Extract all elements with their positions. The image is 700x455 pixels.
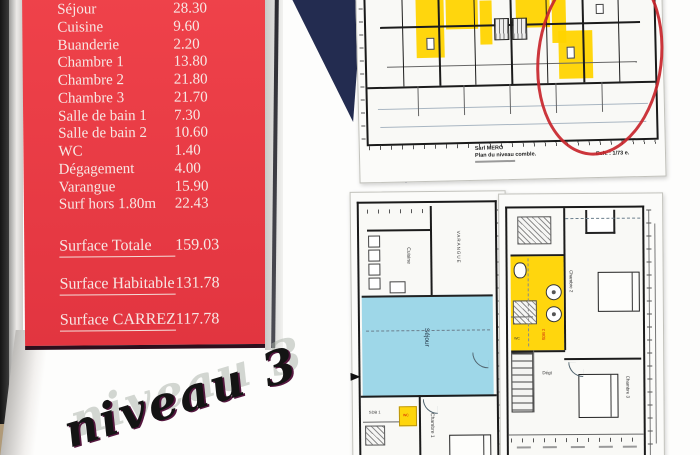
room-label: Chambre 1 [58, 54, 174, 73]
room-label-varangue: VARANGUE [456, 231, 461, 264]
surface-row: Chambre 321.70 [23, 89, 270, 109]
surface-row: Cuisine9.60 [22, 18, 269, 38]
dimension-ticks [358, 0, 366, 144]
room-label-cuisine: Cuisine [405, 247, 411, 264]
room-label-chambre1: Chambre 1 [429, 413, 435, 438]
sink-icon [546, 284, 562, 300]
appliance-icon [368, 250, 380, 262]
scanned-brochure-page: Séjour28.30 Cuisine9.60 Buanderie2.20 Ch… [0, 0, 700, 455]
room-area: 13.80 [174, 54, 208, 72]
surface-row: Buanderie2.20 [22, 35, 269, 55]
stairs-icon [512, 18, 527, 40]
dimension-ticks [511, 438, 642, 443]
door-arc [423, 399, 438, 414]
room-label: Buanderie [57, 36, 173, 55]
surface-row: Chambre 221.80 [23, 71, 270, 91]
surface-row: Séjour28.30 [22, 0, 269, 20]
room-area: 10.60 [174, 125, 208, 143]
top-plan-sheet: Sarl MERO Plan du niveau comble. Ech. : … [354, 0, 666, 183]
room-area: 21.80 [174, 71, 208, 89]
bed-icon [598, 272, 640, 312]
dimension-ticks [367, 209, 429, 214]
surface-row: WC1.40 [23, 142, 270, 162]
plan-frame: SDB 2 Chambre 2 WC Dégt Chambre 3 [505, 206, 646, 455]
surface-row: Chambre 113.80 [23, 53, 270, 73]
stairs-icon [511, 352, 533, 412]
room-area: 15.90 [175, 178, 209, 196]
stove-icon [390, 281, 406, 293]
room-label: WC [58, 143, 174, 162]
room-area: 1.40 [174, 142, 200, 160]
appliance-icon [368, 278, 380, 290]
room-label: Salle de bain 1 [58, 107, 174, 126]
room-label-wc2: WC [514, 336, 520, 340]
room-label: Séjour [57, 1, 173, 20]
shower-icon [365, 425, 385, 445]
navy-diagonal-stripe [288, 0, 362, 122]
yellow-highlight [479, 0, 492, 44]
surface-total-row: Surface Habitable131.78 [59, 274, 219, 295]
total-value: 117.78 [176, 310, 220, 330]
surface-row: Salle de bain 210.60 [23, 124, 270, 144]
wardrobe-icon [517, 216, 551, 244]
room-area: 21.70 [174, 89, 208, 107]
room-label-sdb2: SDB 2 [541, 329, 546, 341]
total-value: 131.78 [175, 274, 219, 294]
plan-title: Plan du niveau comble. [475, 151, 536, 159]
shower-icon [513, 300, 537, 324]
bottom-right-plan-sheet: SDB 2 Chambre 2 WC Dégt Chambre 3 [498, 192, 665, 455]
surface-row: Surf hors 1.80m22.43 [24, 195, 271, 215]
room-area: 28.30 [173, 0, 207, 18]
surface-total-row: Surface Totale159.03 [59, 236, 219, 257]
toilet-icon [514, 262, 527, 278]
room-label-sdb1: SDB 1 [369, 410, 381, 415]
room-area: 22.43 [175, 196, 209, 214]
appliance-icon [368, 236, 380, 248]
handwritten-level-label: niveau 3 [57, 336, 304, 455]
room-label: Chambre 2 [58, 72, 174, 91]
total-value: 159.03 [175, 236, 219, 256]
surface-row: Dégagement4.00 [23, 160, 270, 180]
bed-icon [449, 434, 491, 455]
room-label: Surf hors 1.80m [59, 196, 175, 215]
dimension-ticks [646, 210, 653, 455]
room-area: 9.60 [173, 18, 199, 36]
plan-caption: Sarl MERO Plan du niveau comble. [475, 144, 536, 158]
room-area: 4.00 [174, 160, 200, 178]
room-label: Cuisine [57, 18, 173, 37]
room-label: Varangue [59, 178, 175, 197]
total-label: Surface Totale [59, 237, 175, 258]
stairs-icon [494, 18, 509, 40]
bottom-left-plan-sheet: Cuisine VARANGUE Séjour SDB 1 WC Chambre… [350, 190, 509, 455]
room-area: 7.30 [174, 107, 200, 125]
surface-total-row: Surface CARREZ117.78 [60, 310, 220, 331]
total-label: Surface Habitable [59, 275, 175, 296]
surface-row: Salle de bain 17.30 [23, 106, 270, 126]
room-label-wc: WC [403, 413, 409, 417]
room-label-degt: Dégt [542, 370, 552, 375]
room-area: 2.20 [173, 36, 199, 54]
room-label-chambre2: Chambre 2 [569, 270, 574, 292]
appliance-icon [368, 264, 380, 276]
sink-icon [546, 306, 562, 322]
room-label-chambre3: Chambre 3 [625, 376, 630, 398]
surface-panel: Séjour28.30 Cuisine9.60 Buanderie2.20 Ch… [22, 0, 272, 350]
roof-niche [585, 210, 615, 234]
room-label: Chambre 3 [58, 89, 174, 108]
total-label: Surface CARREZ [60, 311, 176, 332]
bed-icon [578, 374, 618, 418]
door-arc [568, 362, 583, 377]
room-label: Salle de bain 2 [58, 125, 174, 144]
plan-frame: Cuisine VARANGUE Séjour SDB 1 WC Chambre… [357, 200, 500, 455]
dimension-line [654, 223, 657, 443]
surface-row: Varangue15.90 [24, 177, 271, 197]
room-label: Dégagement [58, 160, 174, 179]
